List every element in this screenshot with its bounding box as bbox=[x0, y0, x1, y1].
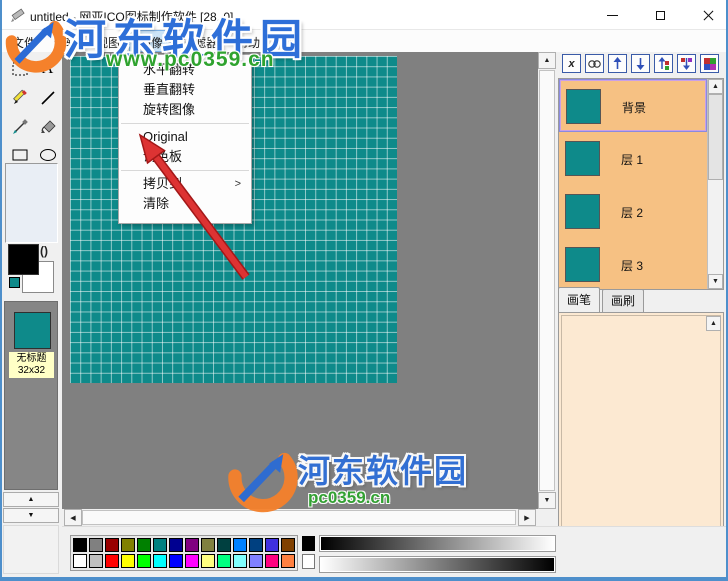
palette-swatch[interactable] bbox=[185, 554, 199, 568]
palette-swatch[interactable] bbox=[105, 554, 119, 568]
gradient-strip bbox=[321, 558, 554, 571]
palette-swatch[interactable] bbox=[153, 554, 167, 568]
left-bottom-panel bbox=[3, 525, 59, 574]
scroll-up-button[interactable]: ▲ bbox=[538, 52, 556, 69]
menu-view[interactable]: 视图 bbox=[87, 30, 129, 52]
brush-listbox[interactable]: ▲ bbox=[558, 312, 724, 530]
bottom-color-bar bbox=[62, 526, 726, 576]
color-mosaic-icon bbox=[704, 58, 716, 70]
palette-swatch[interactable] bbox=[137, 554, 151, 568]
palette-swatch[interactable] bbox=[169, 538, 183, 552]
paint-bucket-icon bbox=[39, 118, 57, 136]
foreground-color-swatch[interactable] bbox=[8, 244, 39, 275]
layer-thumbnail bbox=[565, 194, 600, 229]
palette-swatch[interactable] bbox=[233, 538, 247, 552]
right-panel: x 背景 层 1 bbox=[556, 52, 726, 576]
eyedropper-tool-button[interactable] bbox=[8, 115, 31, 138]
line-tool-button[interactable] bbox=[36, 86, 59, 109]
maximize-button[interactable] bbox=[640, 0, 680, 30]
down-arrow-icon: ▼ bbox=[544, 497, 551, 504]
horizontal-scroll-thumb[interactable] bbox=[82, 510, 516, 525]
left-arrow-icon: ◀ bbox=[70, 514, 75, 522]
palette-swatch[interactable] bbox=[281, 538, 295, 552]
text-tool-button[interactable]: A bbox=[36, 57, 59, 80]
up-arrow-icon: ▲ bbox=[28, 496, 35, 503]
layer-item-1[interactable]: 层 1 bbox=[559, 132, 707, 185]
layer-item-background[interactable]: 背景 bbox=[559, 79, 707, 132]
palette-swatch[interactable] bbox=[249, 538, 263, 552]
ellipse-icon bbox=[39, 146, 57, 164]
palette-swatch[interactable] bbox=[201, 554, 215, 568]
pencil-icon bbox=[11, 89, 29, 107]
minimize-icon bbox=[607, 15, 618, 16]
palette-swatch[interactable] bbox=[105, 538, 119, 552]
window-border-left bbox=[0, 0, 2, 581]
tool-options-panel bbox=[5, 163, 58, 243]
text-tool-icon: A bbox=[42, 60, 54, 78]
layer-label: 层 1 bbox=[621, 151, 643, 168]
menu-item-flip-horizontal[interactable]: 水平翻转 bbox=[119, 60, 251, 80]
palette-swatch[interactable] bbox=[89, 538, 103, 552]
icon-list-down-button[interactable]: ▼ bbox=[3, 508, 59, 523]
palette-swatch[interactable] bbox=[121, 554, 135, 568]
two-circles-icon bbox=[588, 59, 601, 69]
layers-scroll-thumb[interactable] bbox=[708, 94, 723, 180]
arrow-up-squares-icon bbox=[657, 57, 670, 70]
palette-mosaic-button[interactable] bbox=[700, 54, 719, 73]
current-white-swatch[interactable] bbox=[302, 554, 315, 569]
move-layer-down-button[interactable] bbox=[631, 54, 650, 73]
palette-swatch[interactable] bbox=[217, 538, 231, 552]
layers-scrollbar[interactable]: ▲ ▼ bbox=[707, 79, 723, 289]
icon-image-list: 无标题 32x32 bbox=[4, 301, 58, 490]
layer-thumbnail bbox=[565, 247, 600, 282]
current-black-swatch[interactable] bbox=[302, 536, 315, 551]
up-arrow-icon: ▲ bbox=[544, 57, 551, 64]
layers-panel: 背景 层 1 层 2 层 3 ▲ ▼ bbox=[558, 78, 724, 290]
icon-list-up-button[interactable]: ▲ bbox=[3, 492, 59, 507]
rectangle-icon bbox=[11, 146, 29, 164]
menu-file[interactable]: 文件 bbox=[3, 30, 45, 52]
app-window: untitled - 网亚ICO图标制作软件 [28, 0] 文件 编辑 视图 … bbox=[0, 0, 728, 581]
palette-swatch[interactable] bbox=[233, 554, 247, 568]
close-button[interactable] bbox=[688, 0, 728, 30]
menu-bar: 文件 编辑 视图 图像 过滤器 帮助 bbox=[0, 30, 728, 52]
line-icon bbox=[39, 89, 57, 107]
vertical-scroll-thumb[interactable] bbox=[539, 70, 555, 491]
down-arrow-icon: ▼ bbox=[28, 512, 35, 519]
window-title: untitled - 网亚ICO图标制作软件 [28, 0] bbox=[30, 8, 233, 25]
layers-scroll-down-button[interactable]: ▼ bbox=[708, 274, 723, 289]
tab-pen[interactable]: 画笔 bbox=[558, 287, 600, 312]
palette-swatch[interactable] bbox=[137, 538, 151, 552]
palette-swatch[interactable] bbox=[201, 538, 215, 552]
rect-select-icon bbox=[11, 60, 29, 78]
app-icon bbox=[9, 7, 26, 24]
icon-size: 32x32 bbox=[9, 365, 54, 377]
menu-edit[interactable]: 编辑 bbox=[45, 30, 87, 52]
brush-tabs: 画笔 画刷 bbox=[558, 290, 646, 312]
brush-list-area bbox=[561, 315, 721, 527]
title-bar: untitled - 网亚ICO图标制作软件 [28, 0] bbox=[0, 0, 728, 30]
fill-tool-button[interactable] bbox=[36, 115, 59, 138]
palette-swatch[interactable] bbox=[153, 538, 167, 552]
shade-gradient-dark-to-light[interactable] bbox=[319, 535, 556, 552]
canvas-horizontal-scrollbar[interactable]: ◀ ▶ bbox=[62, 509, 538, 526]
palette-swatch[interactable] bbox=[185, 538, 199, 552]
layer-label: 背景 bbox=[622, 99, 646, 116]
delete-layer-button[interactable]: x bbox=[562, 54, 581, 73]
palette-swatch[interactable] bbox=[249, 554, 263, 568]
menu-help[interactable]: 帮助 bbox=[227, 30, 269, 52]
right-arrow-icon: ▶ bbox=[524, 514, 529, 522]
palette-swatch[interactable] bbox=[73, 538, 87, 552]
select-tool-button[interactable] bbox=[8, 57, 31, 80]
annotation-arrow bbox=[128, 123, 258, 288]
up-arrow-icon: ▲ bbox=[712, 83, 719, 90]
up-arrow-icon: ▲ bbox=[710, 320, 717, 327]
scroll-right-button[interactable]: ▶ bbox=[518, 509, 536, 526]
merge-layer-up-button[interactable] bbox=[654, 54, 673, 73]
shade-gradient-light-to-dark[interactable] bbox=[319, 556, 556, 573]
layer-label: 层 2 bbox=[621, 204, 643, 221]
menu-image[interactable]: 图像 bbox=[129, 30, 173, 52]
palette-swatch[interactable] bbox=[217, 554, 231, 568]
scroll-left-button[interactable]: ◀ bbox=[64, 509, 82, 526]
menu-item-rotate-image[interactable]: 旋转图像 bbox=[119, 100, 251, 120]
maximize-icon bbox=[656, 11, 665, 20]
pencil-tool-button[interactable] bbox=[8, 86, 31, 109]
palette-swatch[interactable] bbox=[169, 554, 183, 568]
palette-swatch[interactable] bbox=[281, 554, 295, 568]
palette-swatch[interactable] bbox=[73, 554, 87, 568]
palette-swatch[interactable] bbox=[265, 554, 279, 568]
color-selector: () bbox=[2, 244, 62, 300]
scroll-down-button[interactable]: ▼ bbox=[538, 492, 556, 509]
palette-row-2 bbox=[72, 553, 296, 569]
color-palette bbox=[70, 535, 298, 571]
eyedropper-icon bbox=[11, 118, 29, 136]
move-layer-up-button[interactable] bbox=[608, 54, 627, 73]
brush-scroll-up-button[interactable]: ▲ bbox=[706, 316, 721, 331]
secondary-color-swatch[interactable] bbox=[9, 277, 20, 288]
close-icon bbox=[703, 10, 714, 21]
layer-thumbnail bbox=[566, 89, 601, 124]
palette-swatch[interactable] bbox=[265, 538, 279, 552]
icon-thumbnail[interactable] bbox=[14, 312, 51, 349]
left-toolbar: A bbox=[2, 52, 62, 576]
up-arrow-icon bbox=[612, 57, 623, 70]
layer-item-2[interactable]: 层 2 bbox=[559, 185, 707, 238]
minimize-button[interactable] bbox=[592, 0, 632, 30]
palette-row-1 bbox=[72, 537, 296, 553]
icon-label: 无标题 32x32 bbox=[9, 352, 54, 378]
window-border-bottom bbox=[0, 577, 728, 581]
palette-swatch[interactable] bbox=[89, 554, 103, 568]
x-icon: x bbox=[568, 58, 574, 70]
tab-brush[interactable]: 画刷 bbox=[602, 289, 644, 312]
menu-filter[interactable]: 过滤器 bbox=[173, 30, 227, 52]
icon-name: 无标题 bbox=[9, 353, 54, 365]
canvas-vertical-scrollbar[interactable]: ▲ ▼ bbox=[538, 52, 556, 509]
layer-item-3[interactable]: 层 3 bbox=[559, 238, 707, 291]
duplicate-layer-button[interactable] bbox=[585, 54, 604, 73]
arrow-down-squares-icon bbox=[680, 57, 693, 70]
layer-thumbnail bbox=[565, 141, 600, 176]
merge-layer-down-button[interactable] bbox=[677, 54, 696, 73]
down-arrow-icon bbox=[635, 57, 646, 70]
gradient-strip bbox=[321, 537, 554, 550]
down-arrow-icon: ▼ bbox=[712, 278, 719, 285]
layer-label: 层 3 bbox=[621, 257, 643, 274]
palette-swatch[interactable] bbox=[121, 538, 135, 552]
layers-scroll-up-button[interactable]: ▲ bbox=[708, 79, 723, 94]
menu-item-flip-vertical[interactable]: 垂直翻转 bbox=[119, 80, 251, 100]
swap-colors-icon[interactable]: () bbox=[40, 244, 48, 258]
